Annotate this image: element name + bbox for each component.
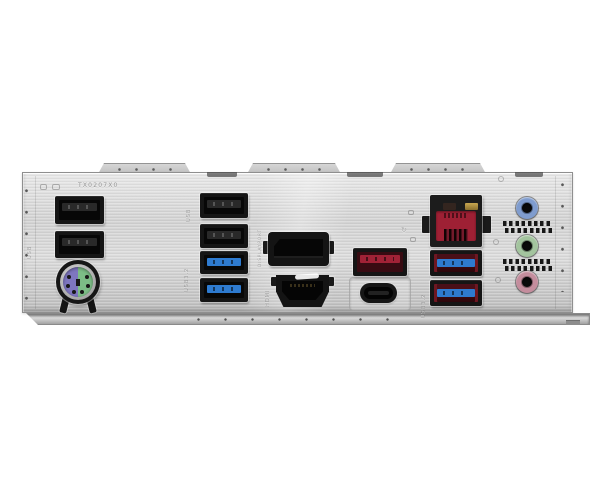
usb-pins	[213, 260, 235, 264]
stamped-groove	[555, 176, 556, 309]
ps2-pin	[86, 284, 90, 288]
vent-row	[503, 221, 552, 226]
ps2-pin	[85, 275, 89, 279]
rj45-jack	[436, 211, 476, 241]
stamped-groove	[35, 176, 36, 309]
displayport-slot	[274, 239, 323, 258]
usb-cavity	[59, 235, 100, 254]
ps2-pin	[80, 290, 84, 294]
usb-pins	[443, 291, 469, 295]
usb-pins	[213, 287, 235, 291]
vent-row	[503, 228, 552, 233]
hdmi-port	[276, 275, 329, 307]
usb3-port	[200, 278, 248, 302]
usb-cavity	[204, 282, 244, 298]
displayport-label: DISPLAYPORT	[257, 233, 262, 267]
usb-cavity	[434, 284, 478, 302]
usb-tongue	[62, 238, 97, 246]
usb-tongue	[207, 258, 241, 266]
usb-cavity	[357, 252, 403, 272]
rivet-column-right	[559, 174, 566, 292]
line-out-jack	[516, 235, 538, 257]
rj45-wing	[481, 216, 491, 233]
usb-cavity	[204, 255, 244, 270]
lan-port	[430, 195, 482, 247]
usb3-gen2-port	[430, 280, 482, 306]
usb32-label: USB3.2	[421, 278, 427, 318]
lan-led-left	[443, 203, 456, 210]
ps2-face	[63, 267, 93, 297]
usb-pins	[213, 233, 235, 237]
line-in-jack	[516, 197, 538, 219]
edge-notch	[347, 172, 383, 177]
hdmi-slot	[282, 281, 323, 300]
line-in-stamp-icon	[498, 176, 504, 182]
usb-tongue	[207, 200, 241, 208]
hdmi-pins	[290, 284, 315, 287]
vent-row	[503, 259, 552, 264]
usb-pins	[68, 205, 91, 209]
usb-label: USB	[186, 198, 192, 222]
usb3-port	[200, 251, 248, 274]
usb3-gen2-port	[353, 248, 407, 276]
usb-label: USB	[27, 231, 33, 259]
usb-tongue	[62, 203, 97, 211]
ps2-port	[56, 260, 100, 304]
usb-type-c-port	[360, 283, 397, 303]
usb-cavity	[434, 254, 478, 272]
usb-tongue	[207, 285, 241, 293]
rj45-clip-slot	[444, 229, 468, 241]
mic-in-jack	[516, 271, 538, 293]
usb2-port	[200, 193, 248, 218]
edge-notch	[515, 172, 543, 177]
rivet-row	[185, 317, 397, 322]
ps2-pin	[72, 290, 76, 294]
edge-notch	[207, 172, 237, 177]
usb3-gen2-port	[430, 250, 482, 276]
usb-tongue	[437, 259, 475, 267]
jack-hole	[522, 203, 532, 213]
flange-notch	[566, 320, 580, 325]
mic-stamp-icon	[495, 277, 501, 283]
usb32-label: USB3.2	[184, 252, 190, 292]
io-shield-photo: TX0207X0 USB USB USB3.2 DISPLAYPORT HDMI…	[0, 0, 600, 480]
usb-tongue	[207, 231, 241, 239]
ps2-pin	[67, 275, 71, 279]
usb-cavity	[204, 228, 244, 244]
rj45-pins	[444, 213, 468, 218]
usb-pins	[213, 202, 235, 206]
line-out-stamp-icon	[493, 239, 499, 245]
stamp-icon	[408, 210, 414, 215]
refresh-stamp-icon: ↻	[401, 226, 407, 234]
jack-hole	[522, 241, 532, 251]
usb-tongue	[360, 255, 400, 263]
usbc-slot	[368, 291, 389, 295]
stamped-code: TX0207X0	[78, 182, 119, 189]
stamp-icon	[410, 237, 416, 242]
usb-tongue	[437, 289, 475, 297]
jack-hole	[522, 277, 532, 287]
lan-led-right	[465, 203, 478, 210]
stamp-icon	[40, 184, 47, 190]
usb-cavity	[59, 200, 100, 220]
usb-cavity	[204, 197, 244, 214]
displayport-port	[268, 232, 329, 266]
ps2-key	[76, 279, 80, 286]
ps2-pin	[66, 284, 70, 288]
ps2-metal-ring	[60, 264, 96, 300]
usb2-port	[200, 224, 248, 248]
usb-pins	[68, 240, 91, 244]
usb-pins	[366, 257, 394, 261]
hdmi-label: HDMI	[265, 283, 271, 307]
usb2-port	[55, 196, 104, 224]
usb-pins	[443, 261, 469, 265]
usb2-port	[55, 231, 104, 258]
stamp-icon	[52, 184, 60, 190]
